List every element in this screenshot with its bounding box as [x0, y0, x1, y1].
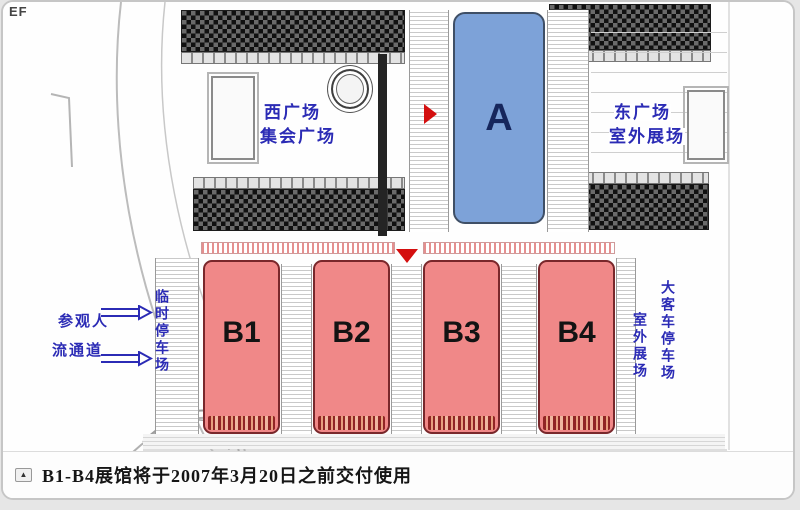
bus-parking-label: 大客车停车场: [661, 280, 675, 382]
corridor-b1-b2: [281, 264, 312, 434]
forecourt-strip-west: [201, 242, 395, 254]
entrance-marker-south-icon: [396, 249, 418, 263]
visitor-flow-arrow-bottom-icon: [99, 351, 153, 367]
hall-b1-label: B1: [222, 316, 260, 350]
tree-parking-block-midwest: [193, 189, 405, 231]
hall-b2: B2: [313, 260, 390, 434]
parking-stalls-northwest: [181, 52, 405, 64]
visitor-flow-arrow-top-icon: [99, 305, 153, 321]
west-square-label-line1: 西广场: [264, 104, 321, 121]
south-road-strip: [143, 434, 725, 449]
west-square-label-line2: 集会广场: [260, 128, 336, 145]
hall-b1-entrances: [208, 416, 275, 430]
hall-b2-entrances: [318, 416, 385, 430]
visitor-flow-label-line2: 流通道: [52, 343, 103, 358]
hall-b4-entrances: [543, 416, 610, 430]
outdoor-exhibition-label: 室外展场: [633, 312, 647, 380]
entrance-marker-west-icon: [424, 104, 437, 124]
tree-parking-block-northwest: [181, 10, 405, 52]
hall-b1: B1: [203, 260, 280, 434]
hall-b3: B3: [423, 260, 500, 434]
caption-bar: ▲ B1-B4展馆将于2007年3月20日之前交付使用: [3, 451, 793, 498]
hall-a-label: A: [485, 97, 512, 140]
forecourt-strip-east: [423, 242, 615, 254]
parking-stalls-midwest: [193, 177, 405, 189]
corridor-b2-b3: [391, 264, 422, 434]
median-strip: [378, 54, 387, 236]
hall-b4-label: B4: [557, 316, 595, 350]
hall-b3-entrances: [428, 416, 495, 430]
west-gate-structure: [211, 76, 255, 160]
corner-label: EF: [9, 4, 28, 19]
east-gate-structure: [687, 90, 725, 160]
east-square-label-line1: 东广场: [614, 104, 671, 121]
corridor-east-of-a: [547, 10, 589, 232]
hall-a: A: [453, 12, 545, 224]
temp-parking-label: 临时停车场: [155, 289, 169, 374]
collapse-button[interactable]: ▲: [15, 468, 32, 482]
east-square-label-line2: 室外展场: [609, 128, 685, 145]
site-plan-map: EF 西广场 集会广场 A 东广场 室外展场: [3, 2, 793, 452]
hall-b3-label: B3: [442, 316, 480, 350]
corridor-b3-b4: [501, 264, 537, 434]
fountain-circle: [331, 69, 369, 109]
hall-b2-label: B2: [332, 316, 370, 350]
hall-b4: B4: [538, 260, 615, 434]
caption-text: B1-B4展馆将于2007年3月20日之前交付使用: [42, 462, 412, 488]
map-frame: EF 西广场 集会广场 A 东广场 室外展场: [1, 0, 795, 500]
